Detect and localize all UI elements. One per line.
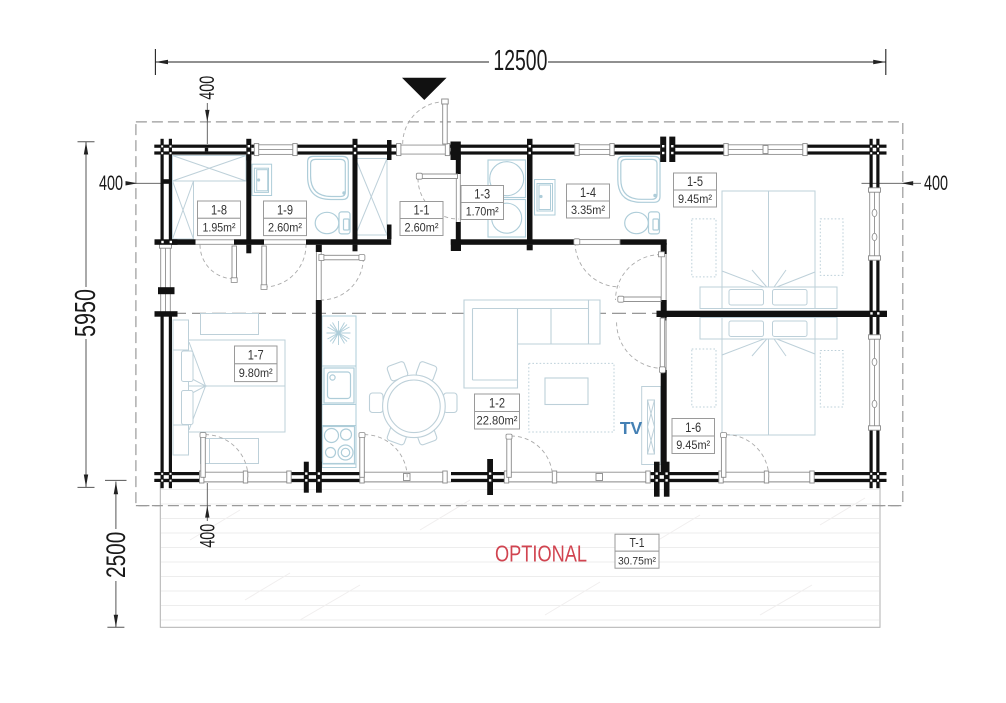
svg-text:1-5: 1-5: [687, 174, 703, 189]
svg-text:2500: 2500: [101, 532, 131, 579]
svg-text:1-2: 1-2: [489, 395, 505, 410]
svg-text:9.80m²: 9.80m²: [239, 366, 273, 380]
svg-text:1-1: 1-1: [414, 203, 430, 218]
svg-text:30.75m²: 30.75m²: [618, 555, 656, 567]
svg-text:OPTIONAL: OPTIONAL: [495, 540, 587, 566]
svg-text:12500: 12500: [493, 45, 547, 77]
svg-text:1-9: 1-9: [277, 202, 293, 217]
svg-text:400: 400: [99, 172, 123, 195]
svg-text:1-6: 1-6: [685, 420, 701, 435]
svg-text:2.60m²: 2.60m²: [268, 220, 302, 234]
svg-text:T-1: T-1: [630, 536, 645, 550]
svg-text:1-7: 1-7: [248, 347, 264, 362]
svg-text:400: 400: [197, 524, 220, 548]
svg-text:9.45m²: 9.45m²: [678, 192, 712, 206]
svg-text:1-3: 1-3: [474, 187, 490, 202]
svg-text:TV: TV: [620, 418, 643, 438]
svg-text:3.35m²: 3.35m²: [571, 203, 605, 217]
svg-text:9.45m²: 9.45m²: [676, 438, 710, 452]
svg-text:5950: 5950: [70, 289, 102, 337]
svg-text:1.95m²: 1.95m²: [203, 220, 236, 234]
svg-text:2.60m²: 2.60m²: [405, 220, 439, 234]
svg-text:1-4: 1-4: [580, 185, 596, 200]
svg-text:1.70m²: 1.70m²: [466, 204, 499, 218]
svg-text:1-8: 1-8: [211, 202, 227, 217]
svg-text:400: 400: [924, 172, 948, 195]
svg-text:22.80m²: 22.80m²: [477, 414, 518, 428]
svg-text:400: 400: [196, 76, 219, 100]
